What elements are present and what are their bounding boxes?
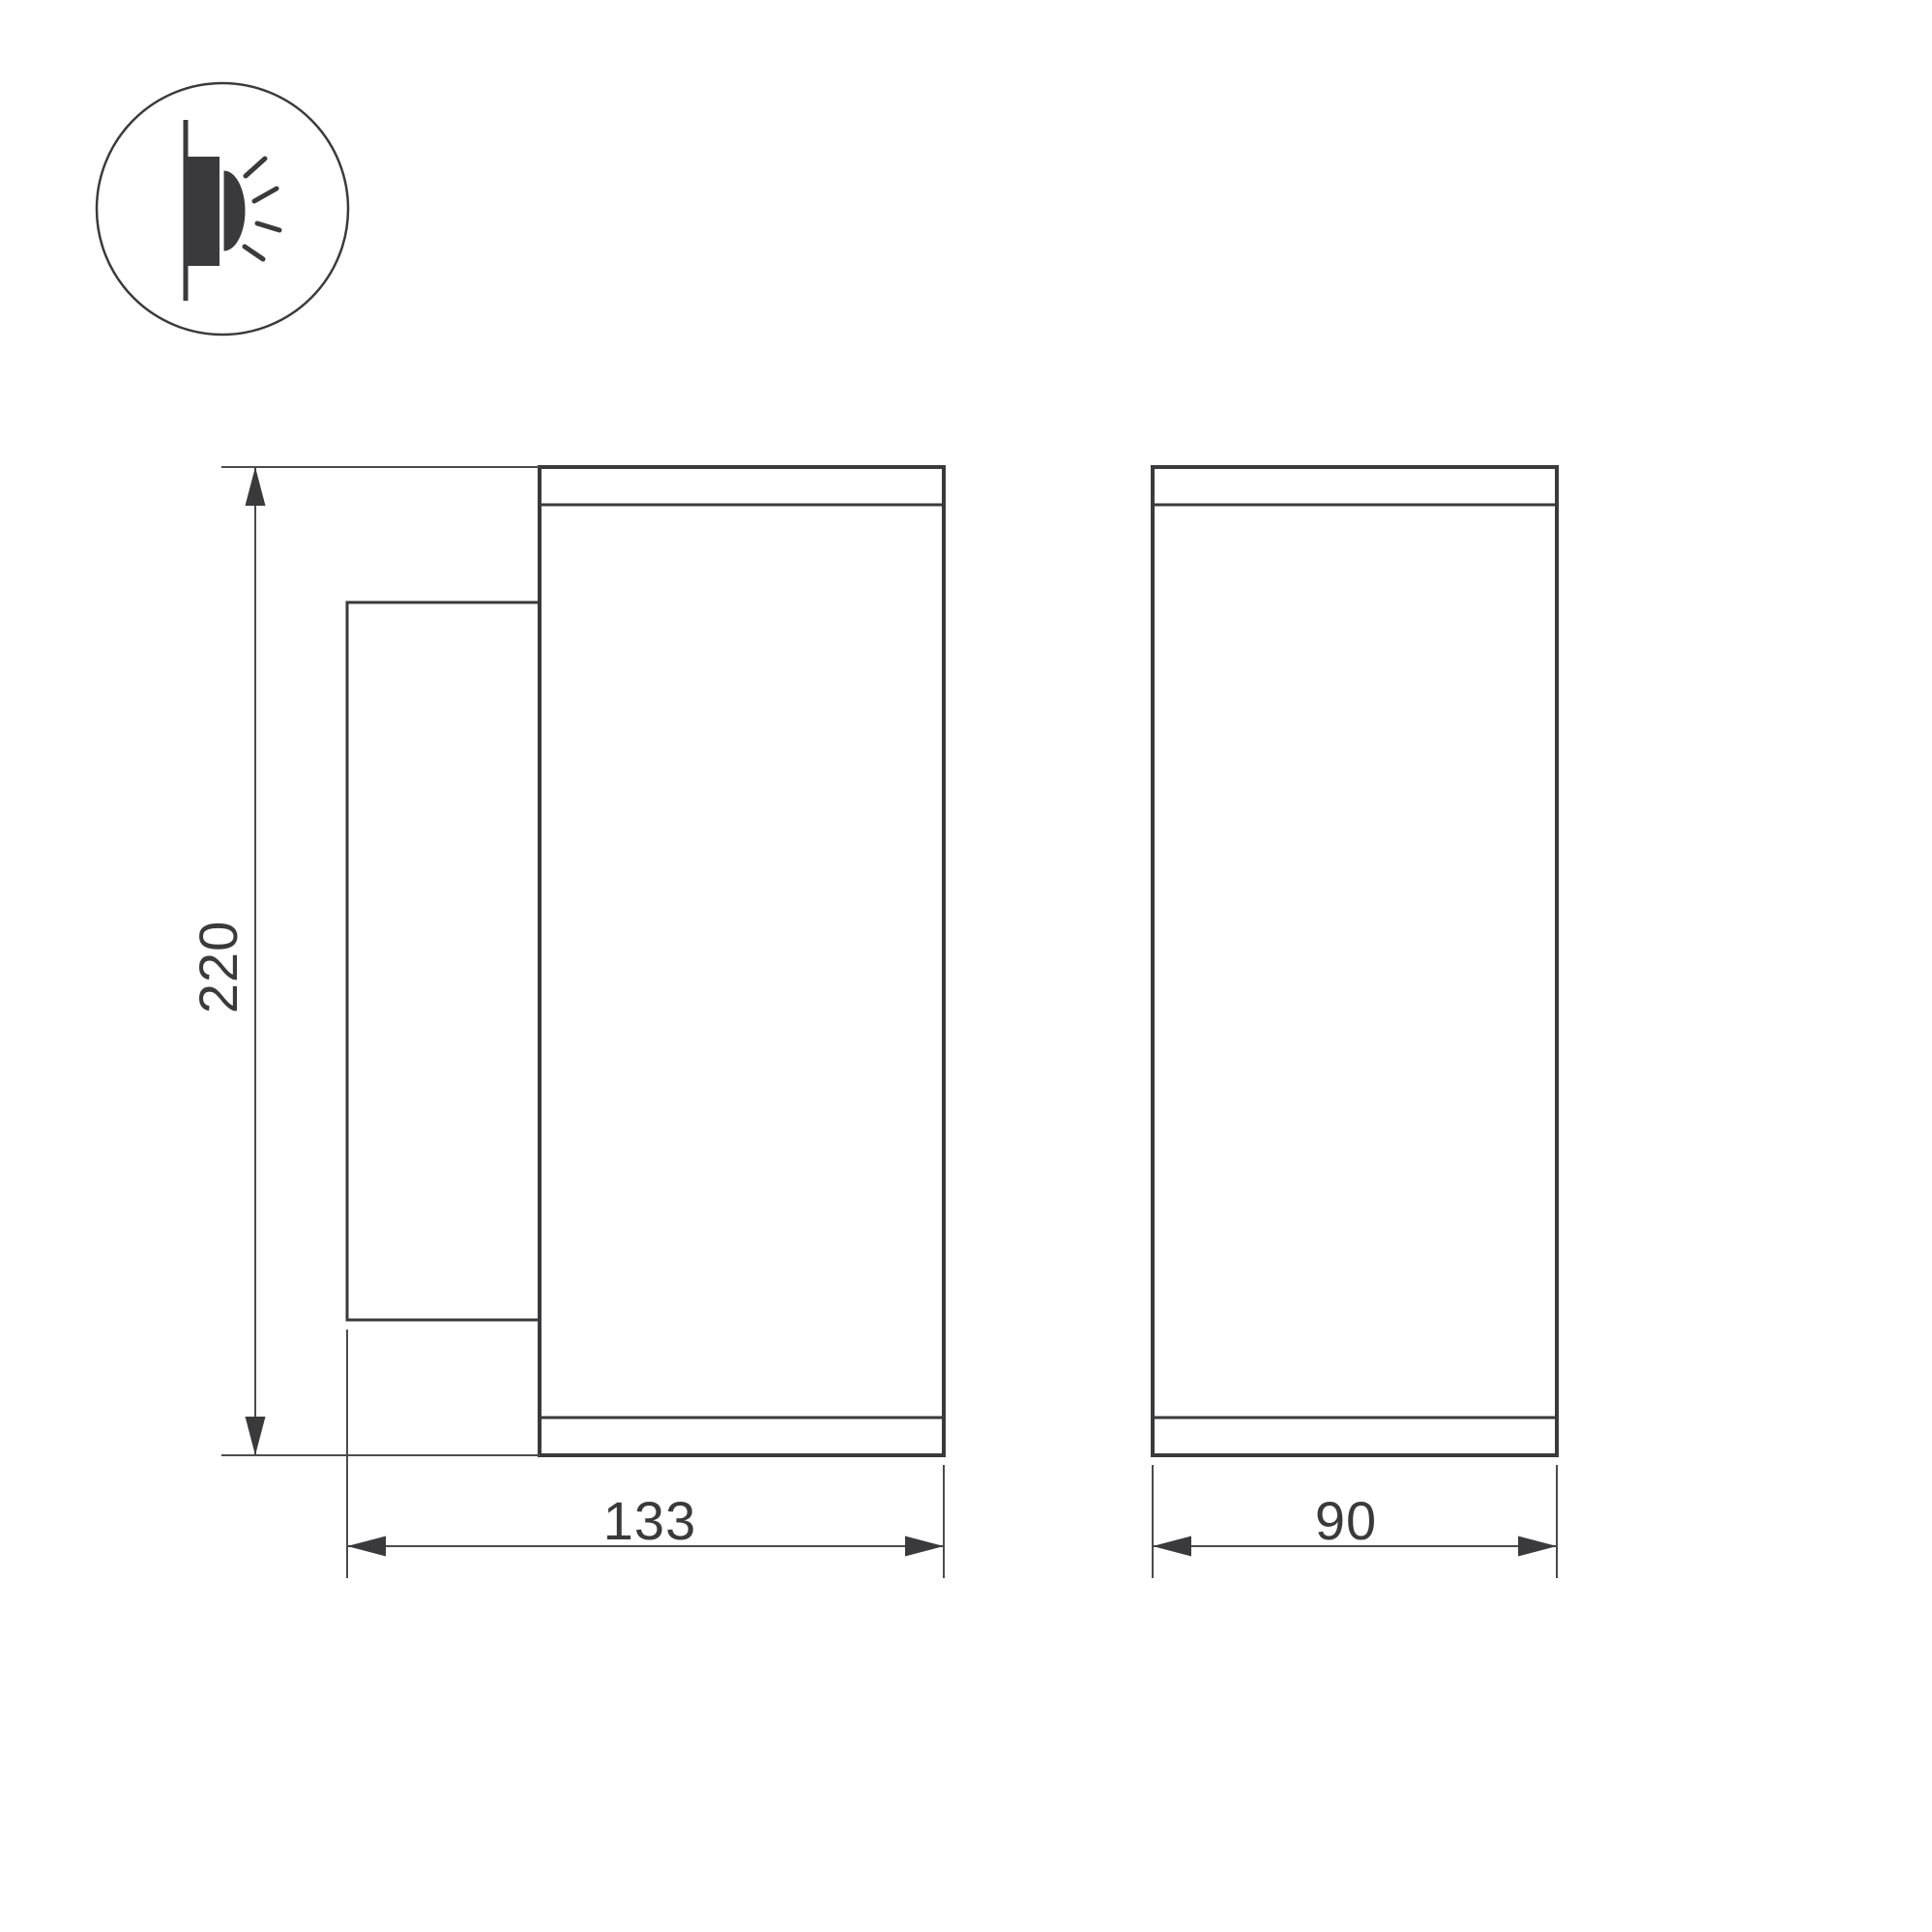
side-view-body-outline xyxy=(540,467,944,1455)
icon-light-dome xyxy=(224,171,246,251)
depth-dimension-arrow-left xyxy=(347,1537,386,1557)
width-dimension-arrow-left xyxy=(1153,1537,1191,1557)
width-dimension-arrow-right xyxy=(1518,1537,1557,1557)
height-dimension-arrow-down xyxy=(246,1417,266,1455)
icon-circle-border xyxy=(97,83,348,335)
wall-lamp-dimension-drawing: 220 133 90 xyxy=(0,0,1932,1932)
side-view-backplate-outline xyxy=(347,602,540,1320)
icon-fixture-body xyxy=(186,157,220,266)
height-dimension: 220 xyxy=(188,467,540,1455)
technical-drawing-canvas: 220 133 90 xyxy=(0,0,1932,1932)
height-dimension-label: 220 xyxy=(188,921,249,1013)
width-dimension: 90 xyxy=(1153,1465,1557,1578)
front-view-body-outline xyxy=(1153,467,1557,1455)
front-view-drawing xyxy=(1153,467,1557,1455)
width-dimension-label: 90 xyxy=(1315,1490,1377,1551)
depth-dimension-label: 133 xyxy=(603,1490,696,1551)
wall-mount-light-icon xyxy=(97,83,348,335)
side-view-drawing xyxy=(347,467,944,1455)
height-dimension-arrow-up xyxy=(246,467,266,506)
depth-dimension-arrow-right xyxy=(905,1537,944,1557)
icon-light-rays xyxy=(245,159,279,259)
